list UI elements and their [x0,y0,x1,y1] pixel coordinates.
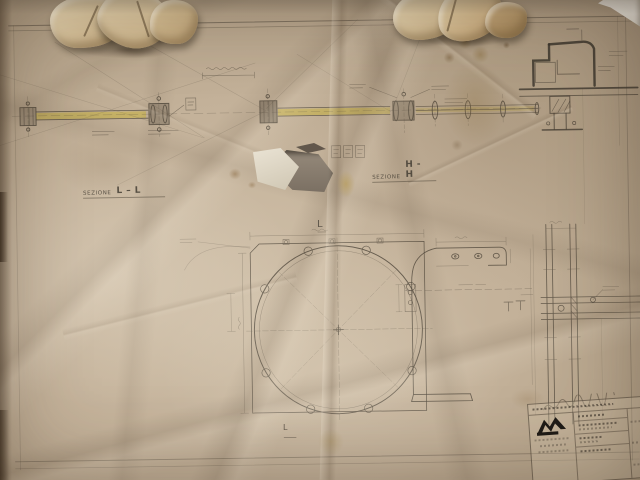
yellow-stain [334,166,358,202]
title-block-text-rows [574,409,633,480]
bottom-stain [314,424,348,460]
brown-spot [246,180,258,190]
wall-visible-through-torn-corner [598,0,640,34]
wall-anchorage-detail [519,28,640,225]
construction-lines [0,18,423,187]
section-label-ll: SEZIONE L–L [83,185,165,198]
section-label-ll-id: L–L [116,186,144,196]
photo-of-technical-drawing: SEZIONE L–L SEZIONE H-H L L [0,0,640,480]
left-edge-dark-patch [0,192,8,262]
wad-shadow [398,28,528,50]
center-fold-crease [320,0,349,480]
crease [359,0,541,120]
torn-edge-shadow [296,143,326,153]
section-marker-l-center: L [317,219,323,230]
mold-stain [418,8,522,70]
wad-shadow [58,38,198,62]
torn-paper-wad [50,0,200,56]
crease [62,271,298,341]
section-label-hh-id: H-H [405,159,436,180]
section-label-hh-prefix: SEZIONE [372,174,401,181]
column-section-drawing [533,220,640,425]
crease [95,83,284,167]
torn-hole [275,150,333,192]
bracket-side-view [395,236,537,402]
section-marker-l-bottom: L [283,423,287,432]
left-edge-dark-patch [0,410,9,480]
zigzag-monogram-logo-icon [535,415,568,437]
flange-plate-drawing [180,227,434,423]
left-edge-shadow [0,0,12,480]
brown-spot [226,166,244,182]
section-label-ll-prefix: SEZIONE [83,190,112,196]
title-block [527,396,640,480]
section-label-hh: SEZIONE H-H [372,159,437,183]
tie-rod-drawing [0,16,545,187]
dimension-annotations [91,64,467,135]
paper-flap [253,148,299,190]
top-edge-shadow [0,0,640,14]
torn-paper-wad [393,0,533,46]
title-block-logo-cell [529,413,579,480]
water-stain [430,55,520,175]
revision-stamp-boxes [169,95,365,160]
